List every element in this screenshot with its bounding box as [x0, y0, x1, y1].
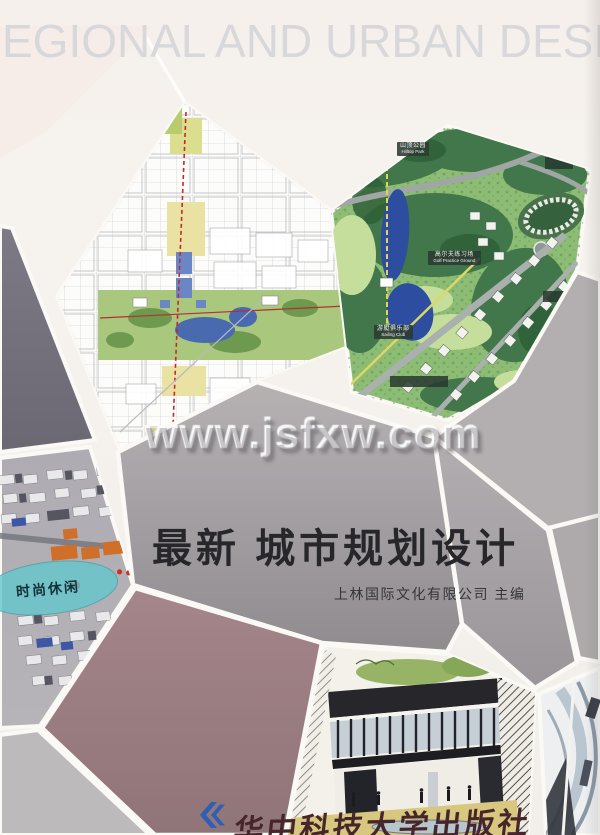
watermark-text: www.jsfxw.com [146, 412, 483, 462]
publisher-block: 华中科技大学出版社 [198, 800, 228, 830]
park-label-golf-en: Golf Practice Ground [433, 259, 475, 264]
park-label-hilltop-en: Hilltop Park [401, 150, 424, 155]
page-edge-shadow [584, 0, 600, 835]
book-title: 最新 城市规划设计 [152, 516, 519, 574]
park-label-sailing-en: Sailing Club [379, 333, 408, 338]
series-title: EGIONAL AND URBAN DESIGN [2, 14, 600, 68]
park-label-sailing: 游艇俱乐部 Sailing Club [374, 325, 413, 339]
park-label-hilltop: 山顶公园 Hilltop Park [397, 142, 429, 156]
editor-credit: 上林国际文化有限公司 主编 [334, 584, 525, 604]
park-label-golf: 高尔夫练习场 Golf Practice Ground [428, 251, 481, 265]
publisher-logo-icon [198, 800, 228, 830]
book-cover: EGIONAL AND URBAN DESIGN www.jsfxw.com 最… [0, 0, 600, 835]
